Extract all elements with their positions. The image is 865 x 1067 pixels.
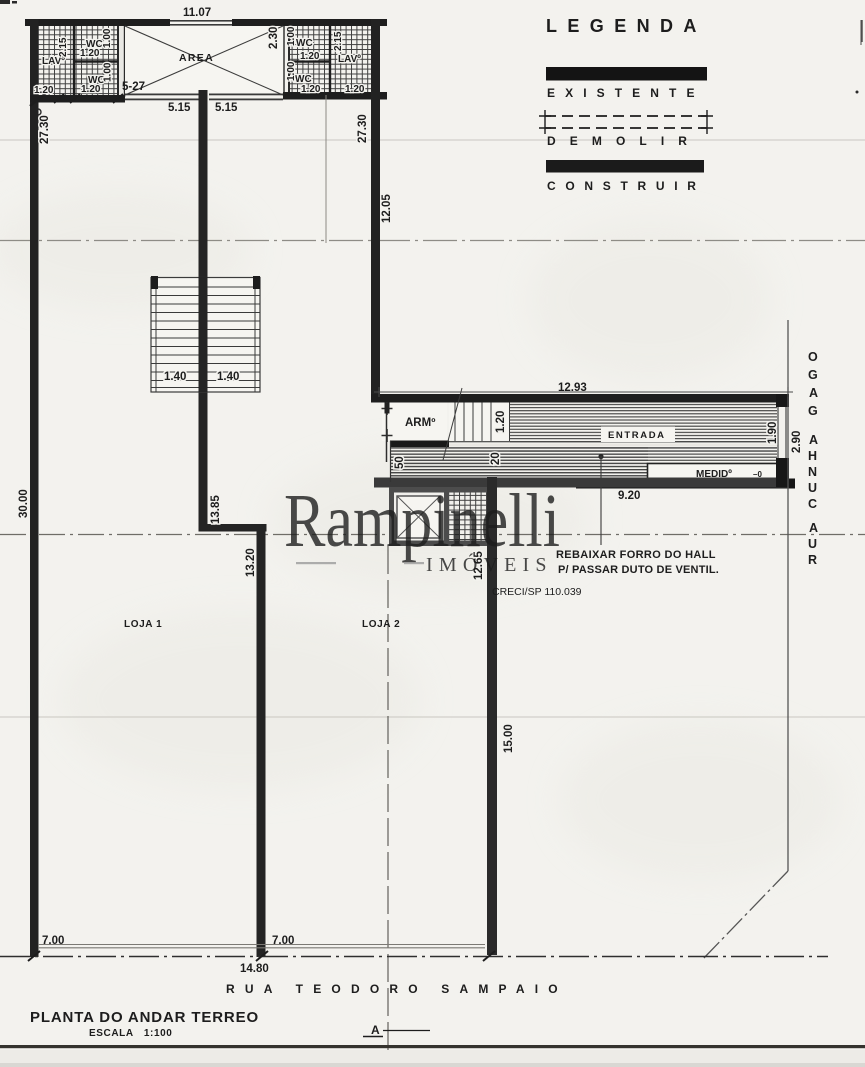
svg-text:LOJA 2: LOJA 2 <box>362 619 400 630</box>
svg-text:15.00: 15.00 <box>503 724 515 753</box>
svg-text:G: G <box>808 404 818 418</box>
svg-text:27.30: 27.30 <box>39 115 51 144</box>
svg-text:50: 50 <box>394 456 406 469</box>
svg-text:12.05: 12.05 <box>381 194 393 223</box>
svg-text:1.20: 1.20 <box>301 84 321 95</box>
svg-text:A: A <box>371 1023 380 1037</box>
svg-text:A: A <box>809 386 818 400</box>
svg-text:1.20: 1.20 <box>345 84 365 95</box>
svg-text:IMÓVEIS: IMÓVEIS <box>426 552 553 576</box>
svg-text:ESCALA 1:100: ESCALA 1:100 <box>89 1028 172 1039</box>
svg-text:–0: –0 <box>753 470 762 479</box>
svg-text:1.00: 1.00 <box>102 28 113 48</box>
svg-text:1.20: 1.20 <box>300 51 320 62</box>
svg-text:U: U <box>808 481 817 495</box>
svg-text:ENTRADA: ENTRADA <box>608 430 666 441</box>
svg-text:1.20: 1.20 <box>34 85 54 96</box>
svg-text:5.15: 5.15 <box>168 102 191 114</box>
svg-text:2.90: 2.90 <box>791 431 803 453</box>
svg-text:AREA: AREA <box>179 52 214 64</box>
svg-text:N: N <box>808 465 817 479</box>
svg-text:REBAIXAR FORRO DO HALL: REBAIXAR FORRO DO HALL <box>556 549 716 561</box>
svg-text:12.93: 12.93 <box>558 382 587 394</box>
svg-text:13.20: 13.20 <box>245 548 257 577</box>
svg-text:CRECI/SP 110.039: CRECI/SP 110.039 <box>492 586 582 598</box>
svg-text:5-27: 5-27 <box>122 81 145 93</box>
svg-text:1.00: 1.00 <box>103 62 114 82</box>
svg-text:C: C <box>808 497 817 511</box>
svg-text:U: U <box>808 537 817 551</box>
svg-text:1.90: 1.90 <box>767 422 779 444</box>
svg-text:2.30: 2.30 <box>268 27 280 49</box>
svg-text:14.80: 14.80 <box>240 963 269 975</box>
svg-text:1.20: 1.20 <box>495 411 507 433</box>
svg-text:1.20: 1.20 <box>81 84 101 95</box>
svg-text:R: R <box>808 553 817 567</box>
svg-text:A: A <box>809 521 818 535</box>
svg-text:WC: WC <box>296 38 313 49</box>
svg-text:MEDIDº: MEDIDº <box>696 469 732 480</box>
svg-text:G: G <box>808 368 818 382</box>
svg-text:27.30: 27.30 <box>357 114 369 143</box>
svg-text:1.40: 1.40 <box>164 371 186 383</box>
svg-text:2.15: 2.15 <box>333 31 344 51</box>
svg-text:1.00: 1.00 <box>286 26 297 46</box>
svg-text:7.00: 7.00 <box>42 935 64 947</box>
svg-text:A: A <box>809 433 818 447</box>
svg-text:LEGENDA: LEGENDA <box>546 16 707 36</box>
svg-text:20: 20 <box>490 452 502 465</box>
svg-text:11.07: 11.07 <box>183 7 211 19</box>
svg-text:EXISTENTE: EXISTENTE <box>547 86 705 100</box>
svg-text:30.00: 30.00 <box>18 489 30 518</box>
svg-text:5.15: 5.15 <box>215 102 238 114</box>
svg-text:1.40: 1.40 <box>217 371 239 383</box>
svg-text:2.15: 2.15 <box>58 37 69 57</box>
svg-text:9.20: 9.20 <box>618 490 640 502</box>
svg-text:RUA TEODORO SAMPAIO: RUA TEODORO SAMPAIO <box>226 982 568 996</box>
svg-text:CONSTRUIR: CONSTRUIR <box>547 179 706 193</box>
svg-text:DEMOLIR: DEMOLIR <box>547 134 701 148</box>
svg-text:PLANTA DO ANDAR TERREO: PLANTA DO ANDAR TERREO <box>30 1009 259 1026</box>
svg-text:LOJA 1: LOJA 1 <box>124 619 162 630</box>
svg-text:P/ PASSAR DUTO DE VENTIL.: P/ PASSAR DUTO DE VENTIL. <box>558 564 719 576</box>
svg-text:1.20: 1.20 <box>80 48 100 59</box>
svg-text:1.00: 1.00 <box>286 61 297 81</box>
svg-text:ARMº: ARMº <box>405 417 435 429</box>
svg-text:7.00: 7.00 <box>272 935 294 947</box>
svg-text:13.85: 13.85 <box>210 495 222 524</box>
svg-text:Rampinelli: Rampinelli <box>284 479 560 563</box>
svg-text:LAVº: LAVº <box>338 54 361 65</box>
svg-text:O: O <box>808 350 818 364</box>
svg-text:H: H <box>808 449 817 463</box>
